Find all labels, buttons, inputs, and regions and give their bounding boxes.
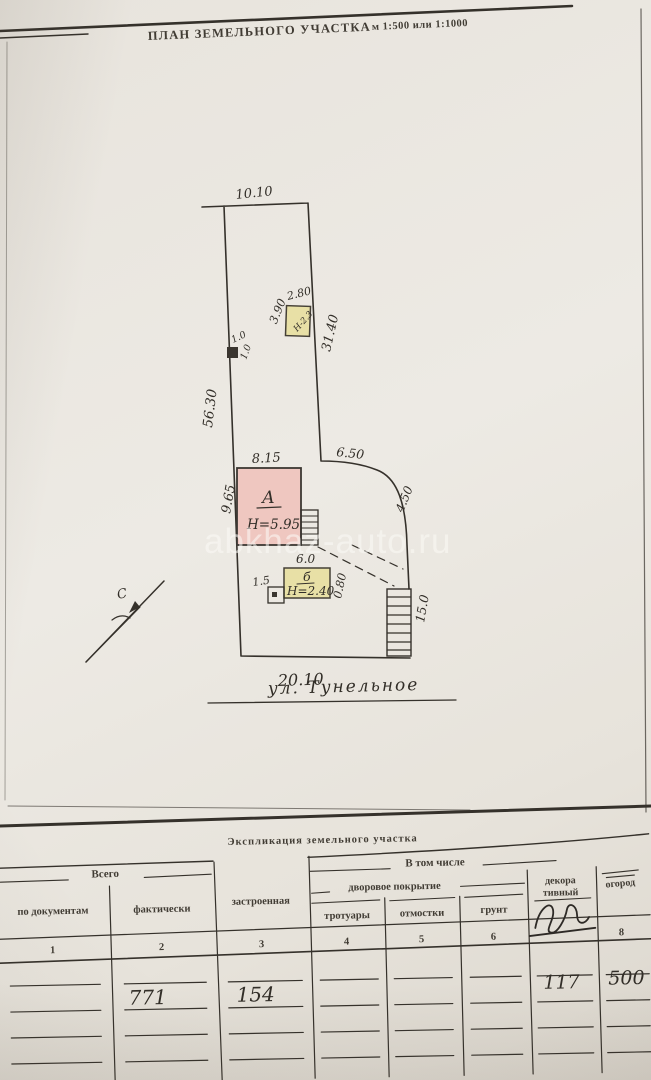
col-header-documents: по документам — [17, 906, 88, 918]
left-border-line — [5, 42, 7, 800]
write-in-row-3 — [11, 1026, 650, 1038]
dim-stairs-length: 15.0 — [412, 593, 432, 623]
value-decorative: 117 — [543, 971, 581, 994]
gate-marker — [227, 347, 238, 358]
col-num-6: 6 — [491, 932, 496, 943]
write-in-row-2 — [11, 1000, 650, 1012]
dim-gate-depth: 1.0 — [238, 343, 254, 361]
group-including-label: В том числе — [405, 856, 465, 869]
plan-bottom-thin-line — [8, 806, 470, 810]
value-builtup: 154 — [236, 982, 275, 1007]
explication-table: Экспликация земельного участка Всего В т… — [0, 829, 651, 1080]
north-label: С — [116, 586, 129, 603]
value-actual-total: 771 — [128, 985, 167, 1010]
col-header-decorative-2: тивный — [543, 887, 579, 899]
group-total-label: Всего — [91, 868, 119, 881]
table-title: Экспликация земельного участка — [227, 833, 417, 848]
handwritten-scribble — [529, 905, 596, 937]
col-num-8: 8 — [619, 927, 624, 938]
col-header-soil: грунт — [480, 904, 508, 916]
dim-right-side: 31.40 — [319, 313, 342, 353]
col-header-garden: огород — [605, 877, 635, 891]
document-canvas: ПЛАН ЗЕМЕЛЬНОГО УЧАСТКА м 1:500 или 1:10… — [0, 0, 651, 1080]
col-num-1: 1 — [50, 945, 55, 956]
value-garden: 500 — [608, 967, 645, 990]
watermark-text: abkhaz-auto.ru — [204, 522, 451, 561]
stairs-outline — [387, 589, 411, 656]
dim-annex-width: 1.5 — [252, 574, 271, 589]
col-header-decorative-1: декора — [545, 875, 576, 887]
stairs-rungs — [387, 597, 411, 650]
write-in-row-4 — [12, 1052, 651, 1064]
dim-shed-width: 2.80 — [285, 284, 313, 303]
dim-east-segment: 6.50 — [336, 444, 365, 462]
plot-plan: Н-2.3 10.10 56.30 31.40 2.80 3.90 1.0 1.… — [86, 184, 456, 703]
annex-dot — [272, 592, 277, 597]
page-frame — [0, 6, 651, 826]
dim-left-side: 56.30 — [200, 388, 221, 429]
stairs — [387, 589, 411, 656]
right-border-line — [641, 9, 646, 812]
col-header-blindarea: отмостки — [400, 908, 445, 920]
col-header-sidewalks: тротуары — [324, 910, 370, 922]
col-header-builtup: застроенная — [232, 896, 291, 908]
dim-gate-width: 1.0 — [230, 329, 248, 345]
building-b-letter: б — [303, 569, 311, 584]
scanned-land-plot-document: ПЛАН ЗЕМЕЛЬНОГО УЧАСТКА м 1:500 или 1:10… — [0, 0, 651, 1080]
col-num-2: 2 — [159, 942, 164, 953]
north-arrow: С — [86, 581, 164, 662]
col-num-3: 3 — [259, 939, 264, 950]
dim-top-width: 10.10 — [235, 184, 274, 203]
dim-building-a-width: 8.15 — [251, 450, 281, 466]
scale-note: м 1:500 или 1:1000 — [372, 18, 469, 33]
top-border-line-2 — [0, 34, 88, 38]
col-num-5: 5 — [419, 934, 424, 945]
north-arrow-short-line — [86, 607, 140, 662]
building-a-letter: А — [261, 488, 275, 508]
building-b-height: Н=2.40 — [286, 584, 335, 598]
numbers-row-bottom-line — [0, 939, 651, 963]
col-header-actual: фактически — [133, 904, 190, 916]
group-yard-label: дворовое покрытие — [348, 881, 441, 894]
street-line — [208, 700, 456, 703]
col-num-4: 4 — [344, 937, 350, 948]
street-name: ул. Тунельное — [267, 675, 420, 699]
